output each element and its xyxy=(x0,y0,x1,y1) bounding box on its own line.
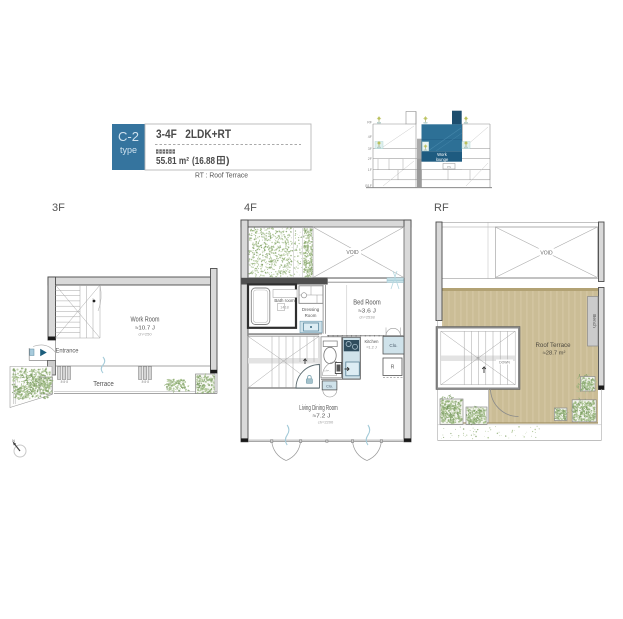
svg-text:RF: RF xyxy=(434,202,449,214)
svg-text:type: type xyxy=(120,145,137,155)
svg-text:RF: RF xyxy=(367,121,373,125)
svg-text:Room: Room xyxy=(305,313,317,318)
svg-text:≈3.6 J: ≈3.6 J xyxy=(358,308,376,314)
svg-text:R: R xyxy=(391,365,395,371)
svg-text:Terrace: Terrace xyxy=(93,381,114,388)
svg-text:DOWN: DOWN xyxy=(499,361,510,365)
svg-text:VOID: VOID xyxy=(540,251,553,257)
svg-text:(16.88: (16.88 xyxy=(192,155,215,167)
svg-text:RT : Roof Terrace: RT : Roof Terrace xyxy=(195,171,248,180)
svg-text:3-4F 2LDK+RT: 3-4F 2LDK+RT xyxy=(156,127,232,141)
svg-text:8·8·8: 8·8·8 xyxy=(61,380,69,384)
svg-text:Dressing: Dressing xyxy=(302,307,320,312)
svg-text:ch=2200: ch=2200 xyxy=(318,420,334,425)
svg-text:lounge: lounge xyxy=(436,157,449,162)
svg-text:≈1.2 J: ≈1.2 J xyxy=(366,346,376,350)
svg-text:): ) xyxy=(226,155,230,167)
svg-text:Living Dining Room: Living Dining Room xyxy=(299,405,338,412)
svg-text:4F: 4F xyxy=(244,202,257,214)
svg-text:ch=2538: ch=2538 xyxy=(359,315,375,320)
svg-text:ch=250: ch=250 xyxy=(138,332,152,337)
svg-text:VOID: VOID xyxy=(346,250,359,256)
svg-text:Bath room: Bath room xyxy=(274,298,295,303)
svg-text:Kitchen: Kitchen xyxy=(365,339,380,344)
svg-text:8·8·8: 8·8·8 xyxy=(142,380,150,384)
svg-text:Clo.: Clo. xyxy=(389,343,397,348)
svg-text:B1F: B1F xyxy=(365,184,372,188)
svg-text:Clo.: Clo. xyxy=(326,384,333,388)
svg-text:Entrance: Entrance xyxy=(56,348,80,355)
svg-text:Bed Room: Bed Room xyxy=(353,299,381,306)
svg-text:Work Room: Work Room xyxy=(131,315,160,324)
svg-text:3F: 3F xyxy=(52,202,65,214)
svg-text:ch=..: ch=.. xyxy=(324,369,330,373)
svg-text:55.81 m²: 55.81 m² xyxy=(156,155,189,167)
svg-text:≈28.7 m²: ≈28.7 m² xyxy=(543,351,566,357)
svg-text:PS: PS xyxy=(447,165,451,169)
svg-text:Roof Terrace: Roof Terrace xyxy=(536,342,571,349)
svg-text:C-2: C-2 xyxy=(118,129,139,144)
svg-text:Bench: Bench xyxy=(591,314,597,328)
